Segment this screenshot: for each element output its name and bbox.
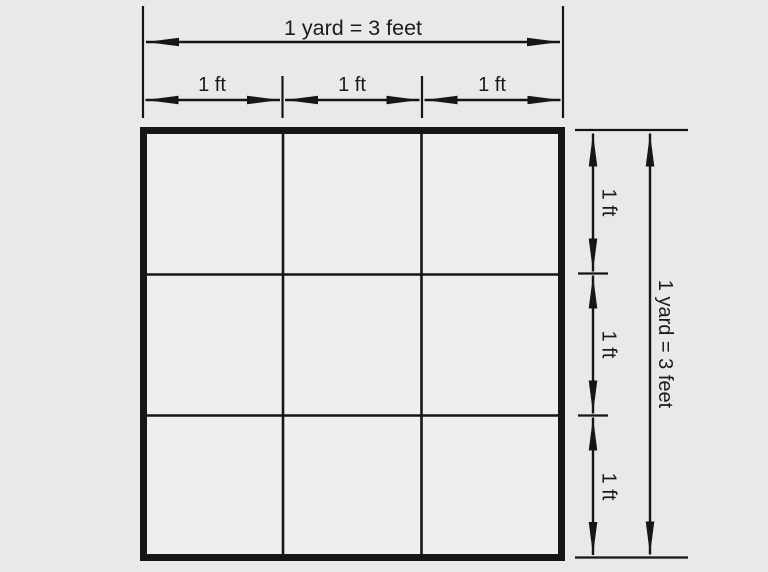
yard-height-label: 1 yard = 3 feet [654,280,676,409]
foot-width-label-1: 1 ft [198,74,226,96]
right-dimensions: 1 ft 1 ft 1 ft 1 yard = 3 feet [575,130,688,558]
top-dimensions: 1 yard = 3 feet 1 ft 1 ft 1 ft [143,6,563,118]
yard-width-label: 1 yard = 3 feet [284,16,422,40]
diagram-canvas: 1 yard = 3 feet 1 ft 1 ft 1 ft [0,0,768,572]
foot-width-label-3: 1 ft [478,74,506,96]
foot-height-label-3: 1 ft [598,473,620,501]
foot-height-label-2: 1 ft [598,331,620,359]
foot-width-label-2: 1 ft [338,74,366,96]
unit-square-diagram: 1 yard = 3 feet 1 ft 1 ft 1 ft [0,0,768,572]
square-yard-outline [144,131,562,558]
foot-height-label-1: 1 ft [598,189,620,217]
square-yard [144,131,562,558]
